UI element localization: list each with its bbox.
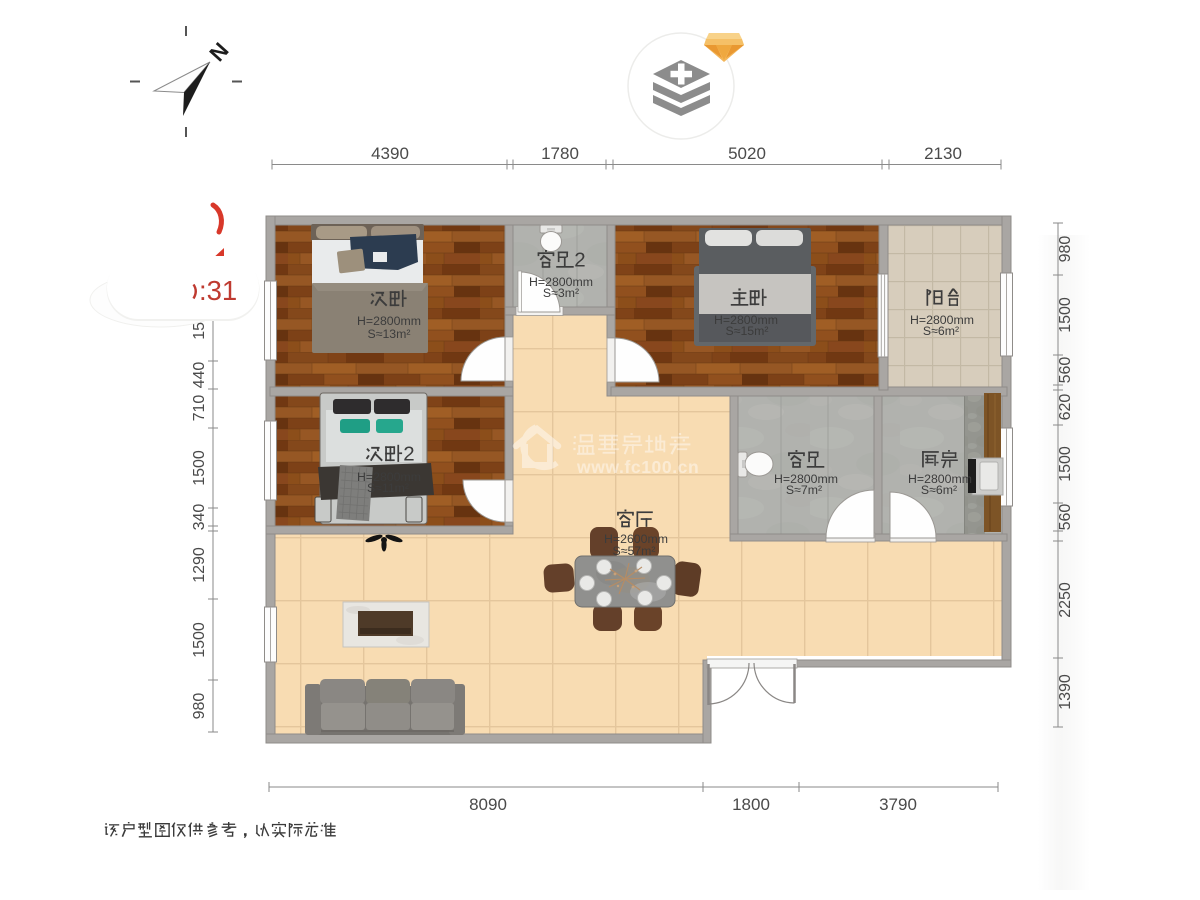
- svg-text:4390: 4390: [371, 144, 409, 163]
- svg-text:710: 710: [191, 395, 208, 422]
- svg-text:S≈13m²: S≈13m²: [368, 327, 411, 341]
- svg-text:1780: 1780: [541, 144, 579, 163]
- svg-text:2: 2: [574, 248, 585, 271]
- svg-text:620: 620: [1057, 394, 1074, 421]
- svg-text::31: :31: [199, 275, 237, 306]
- svg-text:1290: 1290: [191, 547, 208, 583]
- svg-text:1500: 1500: [1057, 446, 1074, 482]
- svg-text:340: 340: [191, 504, 208, 531]
- svg-text:1500: 1500: [191, 622, 208, 658]
- svg-text:S≈15m²: S≈15m²: [726, 324, 769, 338]
- svg-text:1500: 1500: [191, 450, 208, 486]
- svg-text:980: 980: [1057, 236, 1074, 263]
- svg-text:2: 2: [403, 442, 414, 465]
- svg-text:H=2800mm: H=2800mm: [357, 314, 421, 328]
- svg-text:1800: 1800: [732, 795, 770, 814]
- svg-text:2250: 2250: [1057, 582, 1074, 618]
- svg-text:560: 560: [1057, 504, 1074, 531]
- svg-text:8090: 8090: [469, 795, 507, 814]
- svg-text:S≈6m²: S≈6m²: [923, 324, 959, 338]
- svg-text:560: 560: [1057, 357, 1074, 384]
- svg-text:S≈3m²: S≈3m²: [543, 286, 579, 300]
- svg-text:S≈7m²: S≈7m²: [786, 483, 822, 497]
- svg-text:S≈6m²: S≈6m²: [921, 483, 957, 497]
- svg-text:1390: 1390: [1057, 674, 1074, 710]
- svg-text:www.fc100.cn: www.fc100.cn: [576, 457, 699, 477]
- svg-text:2130: 2130: [924, 144, 962, 163]
- svg-text:5020: 5020: [728, 144, 766, 163]
- svg-text:3790: 3790: [879, 795, 917, 814]
- svg-text:S≈57m²: S≈57m²: [613, 544, 656, 558]
- svg-text:980: 980: [191, 693, 208, 720]
- svg-text:1500: 1500: [1057, 297, 1074, 333]
- svg-text:S≈11m²: S≈11m²: [367, 481, 409, 495]
- svg-text:440: 440: [191, 362, 208, 389]
